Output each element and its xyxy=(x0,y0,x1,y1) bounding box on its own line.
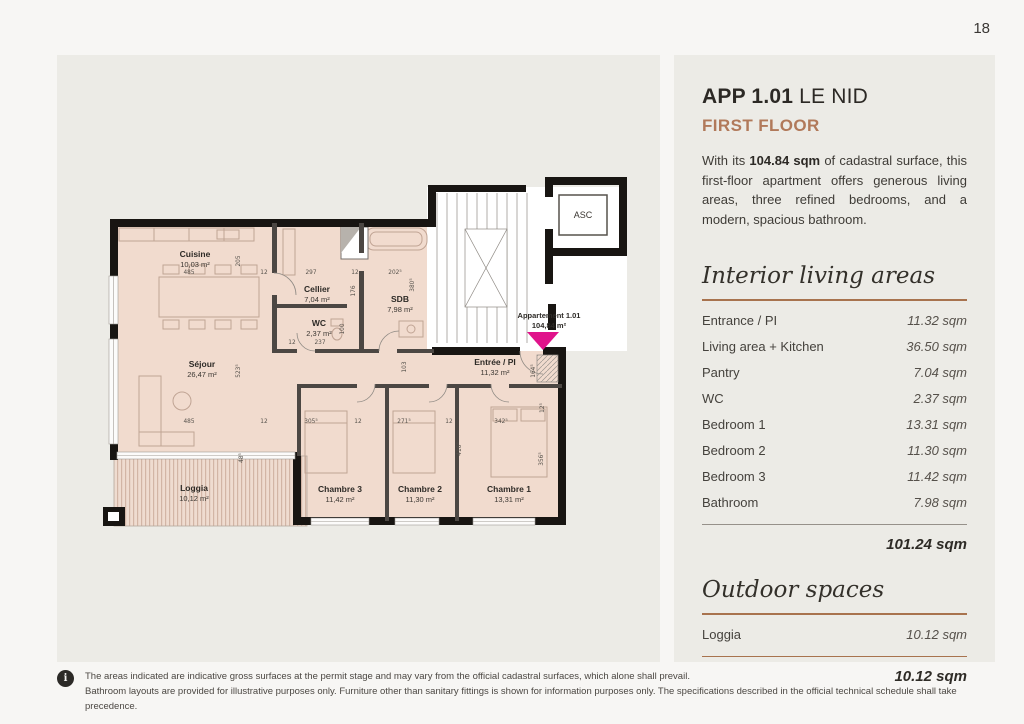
dim-label: 356⁵ xyxy=(538,452,545,466)
dim-label: 12 xyxy=(445,419,453,425)
room-area-label: 2,37 m² xyxy=(306,329,332,338)
area-row: Bedroom 2 11.30 sqm xyxy=(702,437,967,463)
apartment-number: APP 1.01 xyxy=(702,85,793,108)
apartment-title: APP 1.01 LE NID xyxy=(702,85,967,109)
room-area-label: 10,12 m² xyxy=(179,494,209,503)
dim-label: 523⁵ xyxy=(235,364,242,378)
elevator-label: ASC xyxy=(574,210,593,220)
floor-plan: ASC Appartement 1.01 104,84 m² Cuisine10… xyxy=(97,171,657,561)
room-name-label: Loggia xyxy=(180,483,208,493)
area-row-value: 2.37 sqm xyxy=(914,391,967,406)
dim-label: 237 xyxy=(314,340,325,346)
area-row-label: Bedroom 1 xyxy=(702,417,766,432)
disclaimer: i The areas indicated are indicative gro… xyxy=(57,669,969,715)
dim-label: 485 xyxy=(183,270,194,276)
outdoor-heading: Outdoor spaces xyxy=(702,577,967,603)
area-row-value: 11.32 sqm xyxy=(907,313,967,328)
area-row: Bathroom 7.98 sqm xyxy=(702,489,967,515)
area-row-label: Bathroom xyxy=(702,495,758,510)
disclaimer-line-1: The areas indicated are indicative gross… xyxy=(85,669,969,684)
intro-prefix: With its xyxy=(702,153,749,168)
dim-label: 342⁵ xyxy=(494,418,508,425)
disclaimer-line-2: Bathroom layouts are provided for illust… xyxy=(85,684,969,714)
dim-label: 48⁵ xyxy=(238,452,245,462)
room-name-label: Séjour xyxy=(189,359,216,369)
interior-heading: Interior living areas xyxy=(702,263,967,289)
interior-rule xyxy=(702,299,967,301)
area-row: Living area + Kitchen 36.50 sqm xyxy=(702,333,967,359)
room-area-label: 11,42 m² xyxy=(325,495,355,504)
area-row: Pantry 7.04 sqm xyxy=(702,359,967,385)
area-row-label: Pantry xyxy=(702,365,740,380)
area-row-value: 36.50 sqm xyxy=(906,339,967,354)
page-number: 18 xyxy=(973,20,990,37)
apartment-name: LE NID xyxy=(793,85,868,108)
room-area-label: 7,04 m² xyxy=(304,295,330,304)
dim-label: 416⁵ xyxy=(456,442,463,456)
area-row-value: 13.31 sqm xyxy=(906,417,967,432)
outdoor-table: Loggia 10.12 sqm xyxy=(702,621,967,647)
dim-label: 202⁵ xyxy=(388,269,402,276)
area-row: Bedroom 3 11.42 sqm xyxy=(702,463,967,489)
dim-label: 12 xyxy=(351,270,359,276)
dim-label: 485 xyxy=(183,419,194,425)
room-area-label: 10,03 m² xyxy=(180,260,210,269)
area-row: Loggia 10.12 sqm xyxy=(702,621,967,647)
apartment-marker-area: 104,84 m² xyxy=(532,321,567,330)
interior-table: Entrance / PI 11.32 sqm Living area + Ki… xyxy=(702,307,967,515)
dim-label: 297 xyxy=(305,270,316,276)
apartment-marker-name: Appartement 1.01 xyxy=(518,311,581,320)
area-row-label: Living area + Kitchen xyxy=(702,339,824,354)
dim-label: 12 xyxy=(354,419,362,425)
room-area-label: 26,47 m² xyxy=(187,370,217,379)
dim-label: 12 xyxy=(260,419,268,425)
room-area-label: 11,32 m² xyxy=(480,368,510,377)
room-name-label: Entrée / PI xyxy=(474,357,516,367)
dim-label: 176 xyxy=(351,285,357,296)
area-row-value: 7.98 sqm xyxy=(914,495,967,510)
dim-label: 12⁵ xyxy=(539,402,546,412)
dim-label: 12 xyxy=(288,340,296,346)
area-row-label: Bedroom 3 xyxy=(702,469,766,484)
room-name-label: WC xyxy=(312,318,326,328)
disclaimer-text: The areas indicated are indicative gross… xyxy=(85,669,969,715)
intro-surface: 104.84 sqm xyxy=(749,153,820,168)
area-row-label: Loggia xyxy=(702,627,741,642)
interior-total: 101.24 sqm xyxy=(702,524,967,553)
room-area-label: 7,98 m² xyxy=(387,305,413,314)
room-area-label: 11,30 m² xyxy=(405,495,435,504)
dim-label: 103 xyxy=(402,361,408,372)
area-row-value: 11.30 sqm xyxy=(907,443,967,458)
area-row: Bedroom 1 13.31 sqm xyxy=(702,411,967,437)
room-name-label: Chambre 2 xyxy=(398,484,442,494)
room-name-label: SDB xyxy=(391,294,409,304)
outdoor-rule xyxy=(702,613,967,615)
dim-label: 100 xyxy=(340,323,346,334)
area-row-value: 11.42 sqm xyxy=(907,469,967,484)
room-area-label: 13,31 m² xyxy=(494,495,524,504)
dim-label: 271⁵ xyxy=(397,418,411,425)
wardrobe xyxy=(537,355,558,382)
area-row: WC 2.37 sqm xyxy=(702,385,967,411)
dim-label: 305⁵ xyxy=(304,418,318,425)
room-name-label: Chambre 1 xyxy=(487,484,531,494)
area-row-label: Bedroom 2 xyxy=(702,443,766,458)
dim-label: 205 xyxy=(236,255,242,266)
room-name-label: Cellier xyxy=(304,284,331,294)
area-row-label: WC xyxy=(702,391,724,406)
dim-label: 380⁵ xyxy=(409,278,416,292)
area-row-label: Entrance / PI xyxy=(702,313,777,328)
dim-label: 12 xyxy=(260,270,268,276)
area-row-value: 7.04 sqm xyxy=(914,365,967,380)
floor-plan-card: ASC Appartement 1.01 104,84 m² Cuisine10… xyxy=(57,55,660,662)
room-name-label: Chambre 3 xyxy=(318,484,362,494)
info-icon: i xyxy=(57,670,74,687)
floor-subtitle: FIRST FLOOR xyxy=(702,116,967,136)
dim-label: 164⁵ xyxy=(530,364,537,378)
area-row-value: 10.12 sqm xyxy=(906,627,967,642)
intro-paragraph: With its 104.84 sqm of cadastral surface… xyxy=(702,151,967,229)
area-row: Entrance / PI 11.32 sqm xyxy=(702,307,967,333)
elevator: ASC xyxy=(559,195,607,235)
room-name-label: Cuisine xyxy=(180,249,211,259)
details-panel: APP 1.01 LE NID FIRST FLOOR With its 104… xyxy=(674,55,995,662)
